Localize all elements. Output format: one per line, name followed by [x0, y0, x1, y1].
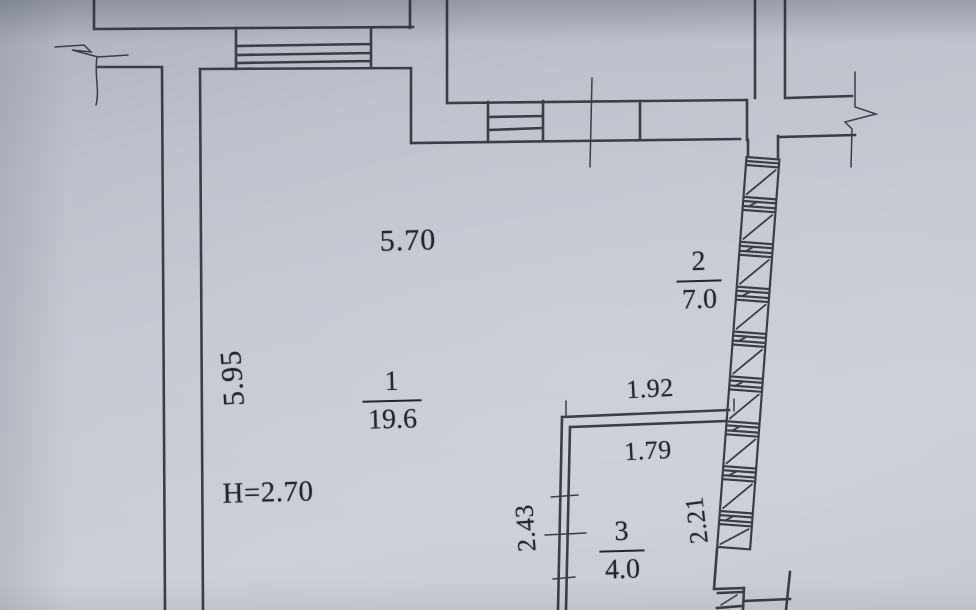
room-label-3: 3 4.0	[599, 517, 646, 584]
floor-plan-photo: 5.70 5.95 H=2.70 1.92 1.79 2.43 2.21 1 1…	[0, 0, 976, 610]
dim-room3-width-inner: 1.79	[624, 437, 673, 465]
dim-room3-height-right: 2.21	[681, 495, 713, 545]
dim-room3-width-outer: 1.92	[626, 375, 675, 403]
floorplan-drawing	[0, 0, 976, 610]
room-2-number: 2	[676, 247, 722, 280]
room-label-1: 1 19.6	[362, 367, 423, 435]
room-3-area: 4.0	[599, 549, 645, 584]
ceiling-height-note: H=2.70	[222, 477, 314, 508]
block-wall-hatching	[720, 168, 775, 546]
dim-room1-width: 5.70	[379, 225, 436, 256]
room-1-number: 1	[362, 367, 422, 401]
room-2-area: 7.0	[676, 279, 722, 314]
block-wall	[717, 157, 779, 549]
room-3-number: 3	[599, 517, 645, 550]
dim-room3-height-left: 2.43	[511, 503, 540, 552]
dim-room1-height: 5.95	[216, 349, 250, 407]
room-label-2: 2 7.0	[676, 247, 723, 314]
room-1-area: 19.6	[362, 399, 422, 435]
wall-lines	[94, 0, 855, 610]
